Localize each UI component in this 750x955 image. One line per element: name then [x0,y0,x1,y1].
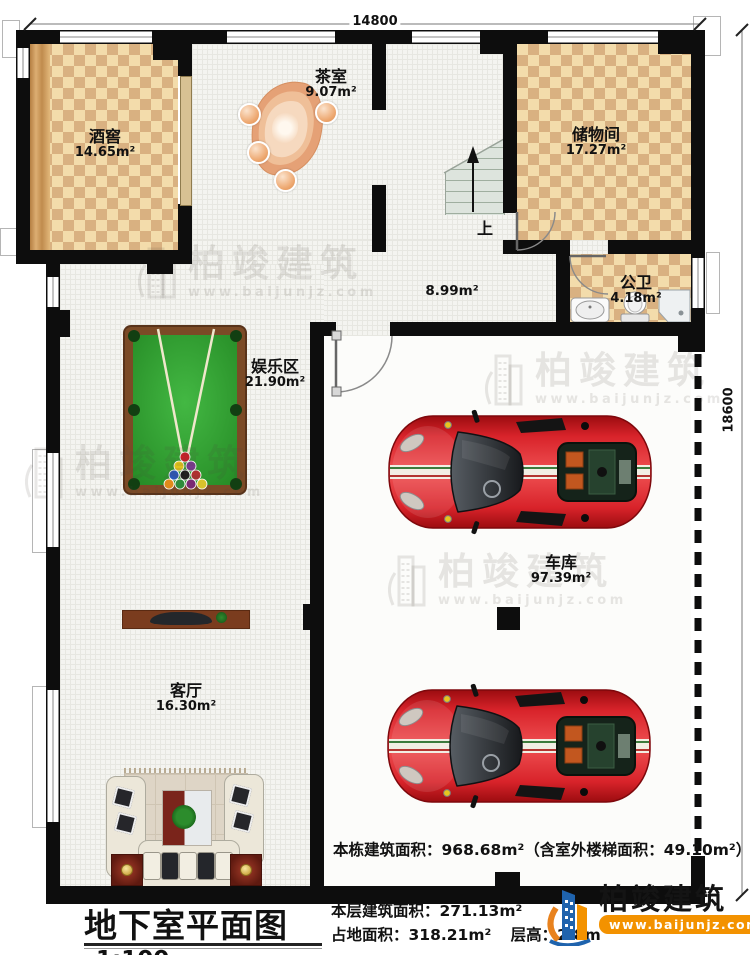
drawing-title: 地下室平面图 [84,906,288,945]
room-label-living-room: 客厅 16.30m² [156,682,216,714]
door-hinge [332,387,341,396]
dimension-right: 18600 [722,384,737,435]
room-label-wine-cellar: 酒窖 14.65m² [75,128,135,160]
stairs-up-label: 上 [477,215,493,239]
title-underline [84,943,322,946]
sports-car [388,683,650,808]
company-logo: 柏竣建筑 www.baijunjz.com [541,884,750,946]
company-logo-icon [541,884,593,946]
stat-footprint: 占地面积：318.21m² [331,926,491,944]
room-label-storage: 储物间 17.27m² [566,126,626,158]
room-label-bathroom: 公卫 4.18m² [610,274,661,306]
room-label-entertainment: 娱乐区 21.90m² [245,358,305,390]
sports-car [389,409,651,534]
door-hinge [332,331,341,340]
corridor-area-label: 8.99m² [425,283,478,299]
stat-building-total: 本栋建筑面积：968.68m²（含室外楼梯面积：49.10m²） [333,838,750,860]
room-label-tea-room: 茶室 9.07m² [305,68,356,100]
door-arcs [336,212,608,392]
stat-floor-area: 本层建筑面积：271.13m² [331,899,522,921]
company-name: 柏竣建筑 [599,884,750,914]
title-underline [84,948,322,949]
floor-plan: 柏竣建筑 www.baijunjz.com 柏竣建筑 www.baijunjz.… [0,0,750,955]
dimension-top: 14800 [349,14,400,29]
drawing-title-block: 地下室平面图1:100 [84,899,324,955]
room-label-garage: 车库 97.39m² [531,554,591,586]
company-url: www.baijunjz.com [599,915,750,934]
door-leaves [336,212,606,392]
